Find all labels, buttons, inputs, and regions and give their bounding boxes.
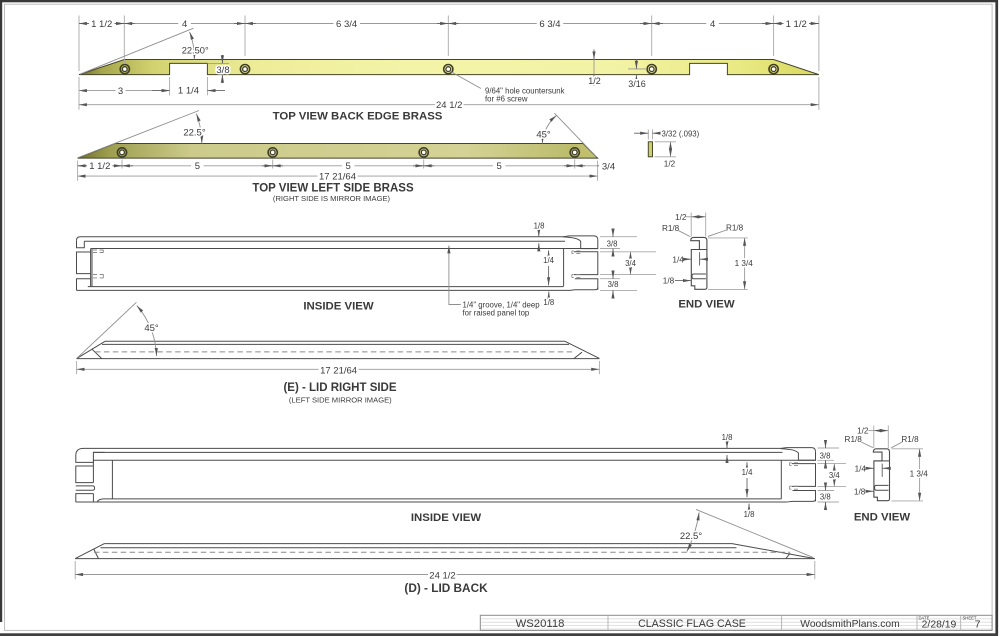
svg-text:INSIDE VIEW: INSIDE VIEW	[303, 300, 374, 312]
svg-text:1/8: 1/8	[722, 433, 733, 442]
svg-text:1/4: 1/4	[855, 464, 867, 473]
svg-text:(D) - LID BACK: (D) - LID BACK	[404, 581, 488, 595]
svg-text:for #6 screw: for #6 screw	[485, 94, 528, 103]
svg-text:1 1/2: 1 1/2	[786, 19, 807, 30]
svg-text:END VIEW: END VIEW	[854, 512, 911, 524]
svg-text:3/8: 3/8	[608, 280, 619, 289]
svg-text:24 1/2: 24 1/2	[436, 100, 462, 111]
svg-text:22.50°: 22.50°	[182, 46, 209, 56]
svg-text:END VIEW: END VIEW	[678, 299, 735, 311]
svg-text:1/2: 1/2	[675, 213, 687, 222]
svg-text:22.5°: 22.5°	[680, 531, 702, 542]
svg-text:3/8: 3/8	[820, 451, 831, 460]
svg-text:(LEFT SIDE MIRROR IMAGE): (LEFT SIDE MIRROR IMAGE)	[289, 396, 392, 405]
svg-text:17 21/64: 17 21/64	[319, 171, 356, 182]
svg-text:5: 5	[497, 161, 502, 172]
svg-text:(E) - LID RIGHT SIDE: (E) - LID RIGHT SIDE	[283, 382, 396, 394]
svg-text:6 3/4: 6 3/4	[539, 19, 560, 30]
svg-text:4: 4	[710, 19, 715, 30]
svg-text:1/2: 1/2	[588, 76, 601, 86]
svg-text:5: 5	[195, 161, 200, 172]
svg-text:1/4: 1/4	[543, 256, 555, 265]
svg-text:1 1/4: 1 1/4	[178, 86, 199, 97]
svg-text:7: 7	[975, 618, 981, 630]
svg-text:6 3/4: 6 3/4	[336, 19, 357, 30]
svg-text:3/8: 3/8	[820, 493, 831, 502]
svg-text:3/16: 3/16	[628, 79, 646, 89]
svg-text:17 21/64: 17 21/64	[320, 366, 357, 377]
svg-text:3/8: 3/8	[216, 65, 229, 76]
svg-text:3/4: 3/4	[829, 471, 841, 480]
svg-text:3/32 (.093): 3/32 (.093)	[662, 129, 700, 138]
svg-text:for raised panel top: for raised panel top	[463, 309, 530, 318]
svg-text:3/8: 3/8	[607, 239, 618, 248]
svg-text:3: 3	[118, 86, 123, 97]
svg-text:R1/8: R1/8	[845, 435, 863, 444]
svg-text:1 3/4: 1 3/4	[735, 259, 754, 268]
svg-text:CLASSIC FLAG CASE: CLASSIC FLAG CASE	[638, 618, 746, 630]
svg-text:1/8: 1/8	[744, 510, 755, 519]
svg-text:4: 4	[182, 19, 187, 30]
svg-text:1/2: 1/2	[664, 159, 676, 168]
svg-text:1 1/2: 1 1/2	[91, 19, 112, 30]
svg-text:24 1/2: 24 1/2	[429, 570, 455, 581]
svg-text:WS20118: WS20118	[516, 618, 565, 630]
svg-text:R1/8: R1/8	[726, 223, 744, 232]
svg-text:2/28/19: 2/28/19	[922, 619, 957, 630]
svg-text:1/4: 1/4	[672, 255, 684, 264]
svg-text:1/4: 1/4	[742, 468, 754, 477]
svg-text:45°: 45°	[536, 130, 551, 141]
svg-text:1/8: 1/8	[534, 221, 545, 230]
svg-text:45°: 45°	[144, 323, 159, 334]
svg-text:(RIGHT SIDE IS MIRROR IMAGE): (RIGHT SIDE IS MIRROR IMAGE)	[273, 194, 391, 203]
svg-text:INSIDE VIEW: INSIDE VIEW	[411, 512, 482, 524]
svg-text:WoodsmithPlans.com: WoodsmithPlans.com	[800, 619, 899, 630]
svg-text:3/4: 3/4	[602, 161, 615, 172]
svg-text:1/8: 1/8	[663, 277, 675, 286]
svg-text:1 1/2: 1 1/2	[89, 161, 110, 172]
svg-text:R1/8: R1/8	[901, 435, 919, 444]
svg-text:TOP VIEW BACK EDGE BRASS: TOP VIEW BACK EDGE BRASS	[273, 111, 443, 123]
svg-text:R1/8: R1/8	[662, 224, 680, 233]
svg-text:22.5°: 22.5°	[183, 128, 205, 139]
svg-text:TOP VIEW LEFT SIDE BRASS: TOP VIEW LEFT SIDE BRASS	[252, 182, 414, 194]
svg-text:1 3/4: 1 3/4	[910, 470, 929, 479]
svg-text:1/8: 1/8	[543, 298, 554, 307]
svg-text:1/8: 1/8	[854, 487, 866, 496]
svg-text:3/4: 3/4	[625, 259, 637, 268]
